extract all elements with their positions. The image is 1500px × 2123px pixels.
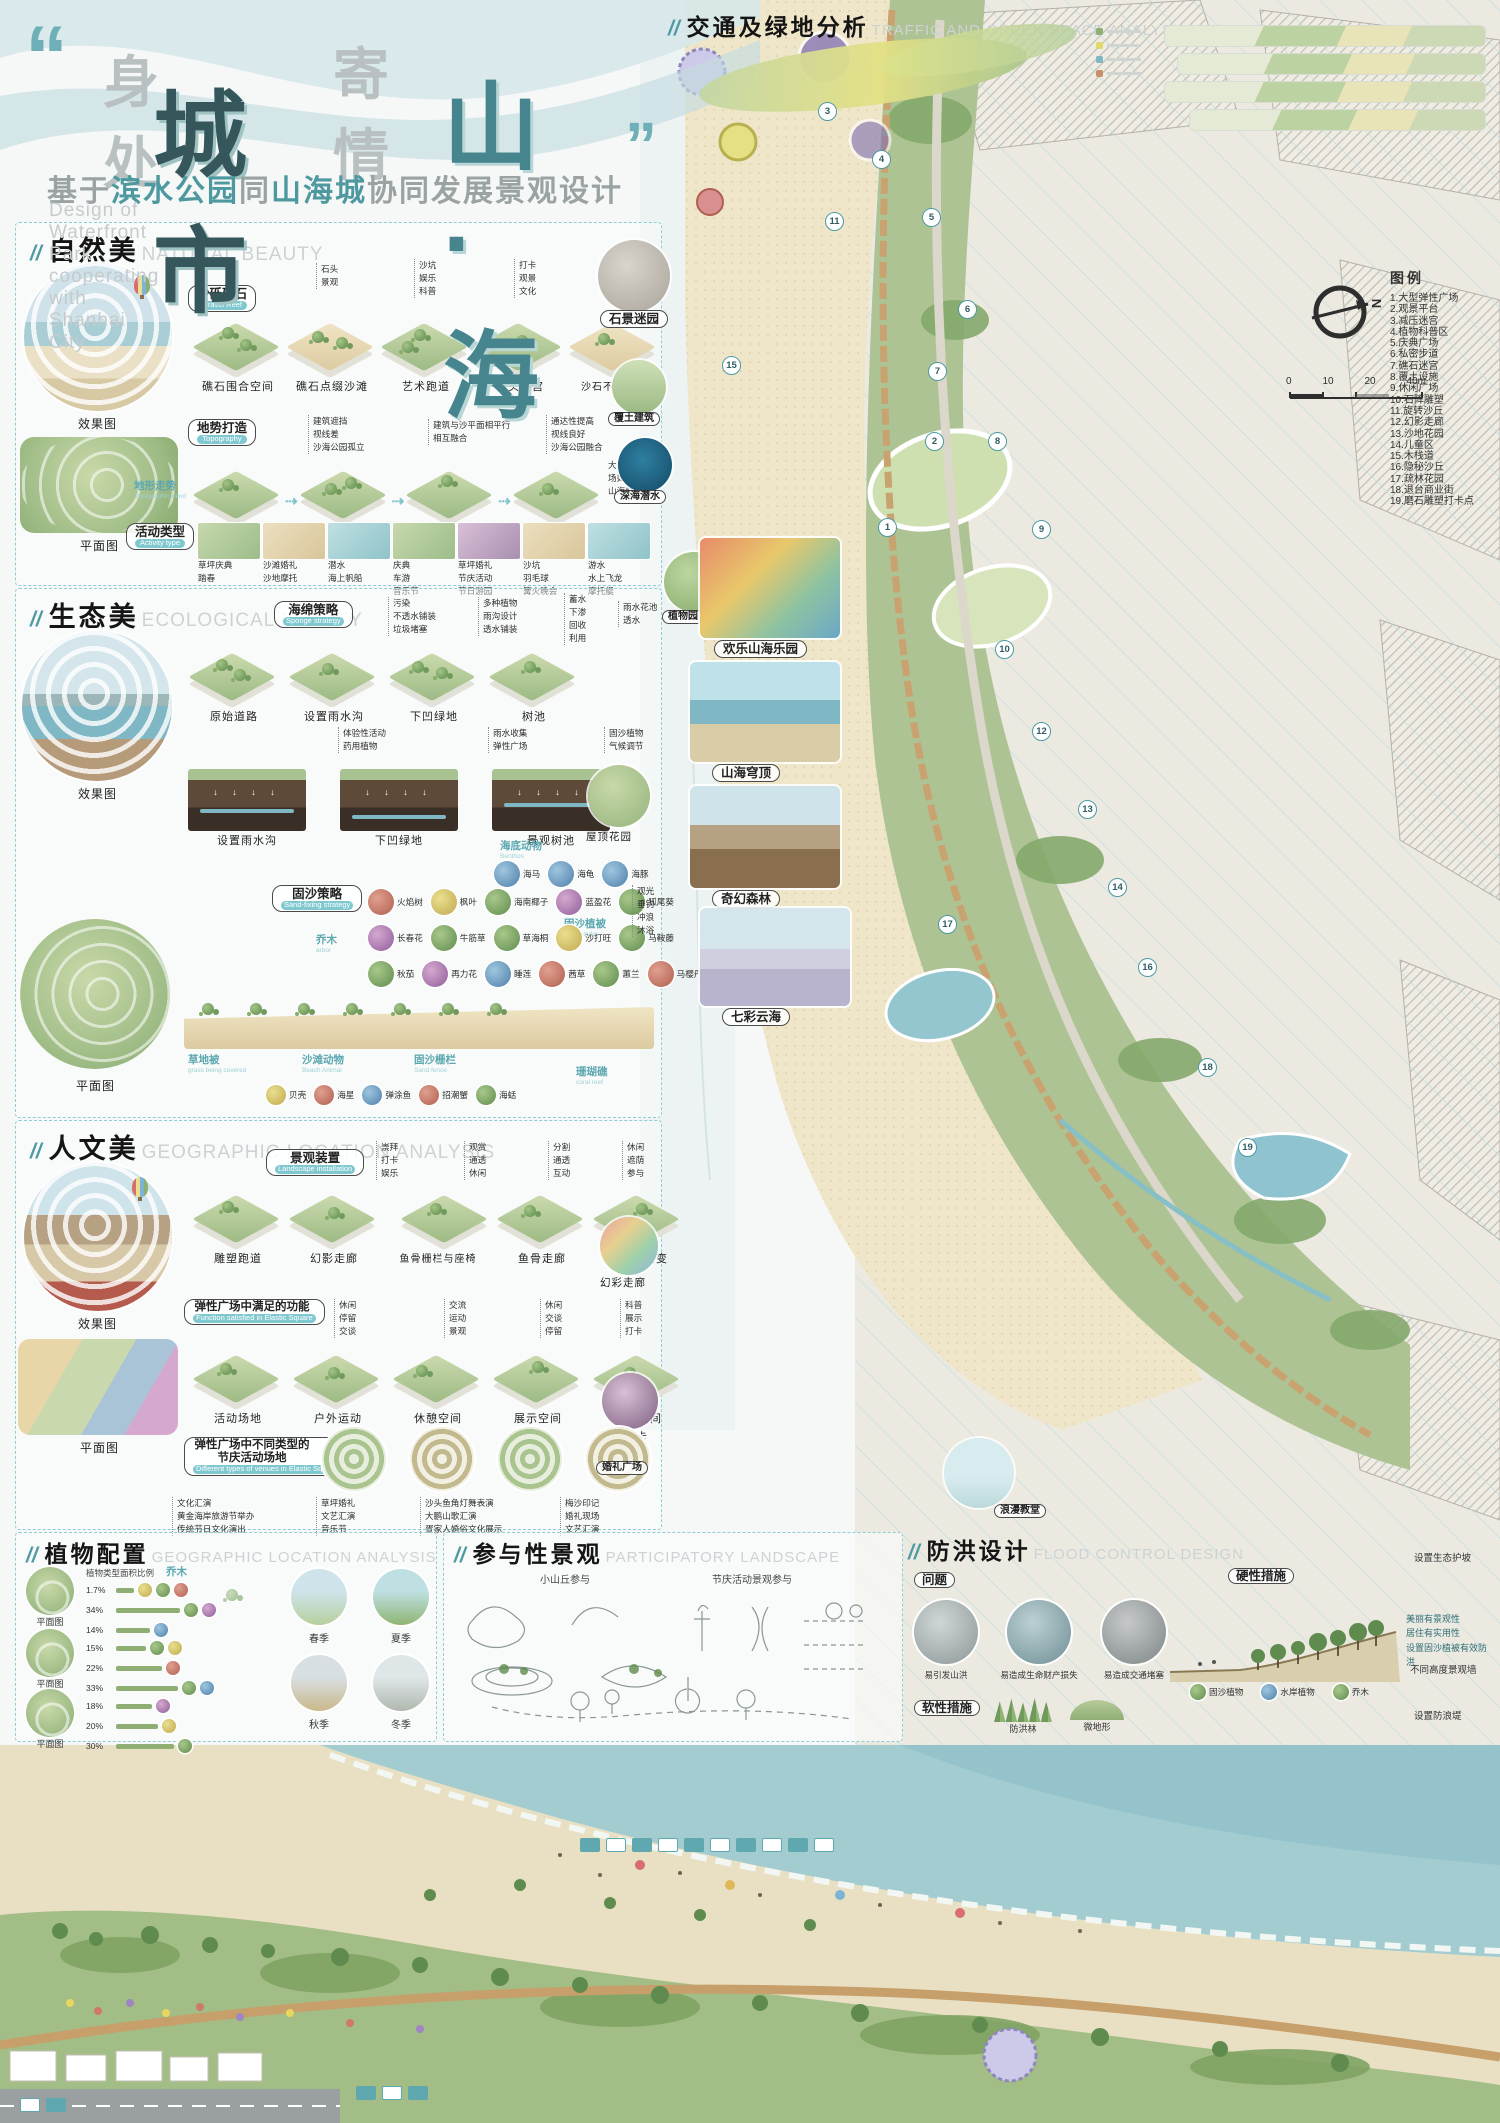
iso-tile — [192, 1343, 284, 1409]
mandala-pool — [984, 2029, 1036, 2081]
legend-items: 1.大型弹性广场 2.观景平台 3.减压迷宫 4.植物科普区 5.庆典广场 6.… — [1390, 293, 1498, 508]
participation-sketches — [452, 1581, 892, 1736]
slope-plant-row: 固沙植物 水岸植物 乔木 — [1190, 1684, 1369, 1700]
plant-circle — [556, 925, 582, 951]
colorful-sea-photo — [700, 908, 850, 1006]
sea-animal-circle — [494, 861, 520, 887]
iso-tile — [405, 459, 497, 525]
note-group: 蓄水 下渗 回收 利用 — [564, 593, 586, 645]
map-marker: 1 — [878, 518, 897, 537]
section-humanistic-beauty: // 人文美 GEOGRAPHIC LOCATION ANALYSIS 效果图 … — [15, 1120, 662, 1530]
chapel-callout: 浪漫教堂 — [994, 1504, 1046, 1518]
iso-tile — [388, 641, 480, 707]
palm-icon — [442, 1003, 454, 1015]
func-group: 交流 运动 景观 — [444, 1299, 466, 1338]
effect-caption: 效果图 — [78, 1315, 117, 1332]
map-marker: 3 — [818, 102, 837, 121]
chart-title: 植物类型面积比例 — [86, 1567, 154, 1579]
amenity-icon — [46, 2098, 66, 2112]
event-group: 文化汇演 黄金海岸旅游节举办 传统节日文化演出 — [172, 1497, 254, 1536]
hard-measure-notes: 美丽有景观性 居住有实用性 设置固沙植被有效防洪 — [1406, 1612, 1488, 1670]
animal-circle — [266, 1085, 286, 1105]
winter-photo — [373, 1655, 429, 1711]
plant-circle — [485, 961, 511, 987]
amenity-icon — [658, 1838, 678, 1852]
palm-icon — [346, 1003, 358, 1015]
amenity-icon — [606, 1838, 626, 1852]
right-note-1: 设置生态护坡 — [1414, 1550, 1471, 1564]
sand-fence-group-chip: 固沙栅栏Sand fence — [414, 1055, 456, 1074]
elastic-square-function-chip: 弹性广场中满足的功能Function satisfied in Elastic … — [184, 1299, 325, 1325]
compass-north-label: N — [1369, 299, 1384, 308]
plan-thumb-2: 平面图 — [26, 1629, 74, 1690]
colorful-sea-callout: 七彩云海 — [722, 1008, 790, 1026]
amenity-icon-bar-3 — [20, 2098, 66, 2112]
eco-effect-photo — [22, 631, 172, 781]
plant-circle — [368, 961, 394, 987]
canopy-photo — [690, 662, 840, 762]
human-plan-image — [18, 1339, 178, 1435]
amenity-icon — [580, 1838, 600, 1852]
flow-arrow-icon: ⇢ — [285, 492, 298, 510]
map-marker: 4 — [872, 150, 891, 169]
balloon-icon — [132, 1177, 148, 1197]
human-header: // 人文美 GEOGRAPHIC LOCATION ANALYSIS — [30, 1127, 495, 1166]
analysis-thumb-2 — [1178, 54, 1485, 74]
traffic-title: 交通及绿地分析 — [687, 8, 869, 42]
flood-problem-photo — [1007, 1600, 1071, 1664]
topo-trend-chip: 地形走势Topographic trend — [134, 481, 186, 500]
legend-swatch-teal — [1096, 56, 1103, 63]
earth-building-callout: 覆土建筑 — [608, 412, 660, 426]
plan-caption: 平面图 — [80, 537, 119, 554]
amenity-icon — [20, 2098, 40, 2112]
func-group: 科普 展示 打卡 — [620, 1299, 642, 1338]
note-group: 多种植物 雨沟设计 透水铺装 — [478, 597, 517, 636]
benthos-group-chip: 海底动物Benthos — [500, 841, 542, 860]
wedding-plaza-chip: 婚礼广场 — [596, 1461, 648, 1475]
forest-pavilion-photo — [690, 786, 840, 888]
canopy-callout: 山海穹顶 — [712, 764, 780, 782]
palm-row — [202, 1003, 502, 1015]
flood-problem-photo — [914, 1600, 978, 1664]
sponge-strategy-chip: 海绵策略Sponge strategy — [274, 601, 353, 628]
palm-icon — [490, 1003, 502, 1015]
pct-block-2: 15% 22% 33% — [86, 1641, 214, 1695]
circular-plaza — [498, 1427, 562, 1491]
map-marker: 14 — [1108, 878, 1127, 897]
map-marker: 11 — [825, 212, 844, 231]
amenity-icon — [408, 2086, 428, 2100]
note-group: 崇拜 打卡 娱乐 — [376, 1141, 398, 1180]
iso-tile — [288, 641, 380, 707]
tile-note: 雨水收集 弹性广场 — [488, 727, 527, 753]
legend-title: 图例 — [1390, 268, 1498, 288]
map-marker: 16 — [1138, 958, 1157, 977]
map-marker: 13 — [1078, 800, 1097, 819]
activity-type-chip: 活动类型Activity type — [126, 523, 194, 550]
problem-chip: 问题 — [914, 1572, 955, 1588]
palm-icon — [394, 1003, 406, 1015]
grass-group-chip: 草地被grass being covered — [188, 1055, 247, 1074]
note-group: 观赏 通透 休闲 — [464, 1141, 486, 1180]
section-slash-icon: // — [30, 242, 42, 266]
analysis-thumb-3 — [1165, 82, 1485, 102]
iso-tile — [488, 641, 580, 707]
color-corridor-caption: 幻彩走廊 — [600, 1275, 646, 1290]
sea-animal-circle — [602, 861, 628, 887]
iso-tile — [286, 311, 378, 377]
roof-garden-caption: 屋顶花园 — [586, 829, 632, 844]
deep-dive-callout: 深海潜水 — [614, 490, 666, 504]
landscape-installation-chip: 景观装置Landscape installation — [266, 1149, 364, 1176]
section-slash-icon: // — [668, 17, 680, 41]
plant-row-3: 秋茄 再力花 睡莲 茜草 蕙兰 马樱丹 — [368, 961, 707, 987]
section-slash-icon: // — [26, 1544, 38, 1568]
panorama-rendering — [0, 1745, 1500, 2123]
amenity-icon — [710, 1838, 730, 1852]
iso-tile — [188, 641, 280, 707]
close-quote: ” — [625, 108, 657, 182]
amenity-icon — [632, 1838, 652, 1852]
beach-animal-row: 贝壳 海星 弹涂鱼 招潮蟹 海蛞 — [266, 1085, 521, 1105]
title-part-4: 山·海 — [443, 50, 541, 438]
flood-header: // 防洪设计 FLOOD CONTROL DESIGN — [908, 1532, 1244, 1566]
activity-photo — [523, 523, 585, 559]
beach-activity-list: 观光 垂钓 冲浪 沐浴 — [632, 885, 654, 937]
plant-circle — [431, 925, 457, 951]
note-group: 通达性提高 视线良好 沙海公园融合 — [546, 415, 603, 454]
plant-circle — [368, 889, 394, 915]
part-header: // 参与性景观 PARTICIPATORY LANDSCAPE — [454, 1535, 840, 1569]
stone-garden-callout: 石景迷园 — [600, 310, 668, 328]
earth-building-photo — [612, 360, 666, 414]
human-title: 人文美 — [49, 1127, 139, 1166]
activity-photo — [393, 523, 455, 559]
section-ecological-beauty: // 生态美 ECOLOGICAL BEAUTY 海绵策略Sponge stra… — [15, 588, 662, 1118]
chapel-photo — [944, 1438, 1014, 1508]
beach-animal-group-chip: 沙滩动物Beach Animal — [302, 1055, 344, 1074]
part-title: 参与性景观 — [473, 1535, 603, 1569]
analysis-thumb-1 — [1165, 26, 1485, 46]
map-marker: 7 — [928, 362, 947, 381]
plan-caption: 平面图 — [80, 1439, 119, 1456]
eco-tiles-row: 原始道路 设置雨水沟 下凹绿地 树池 — [188, 641, 580, 724]
note-group: 沙坑 娱乐 科普 — [414, 259, 436, 298]
circular-plaza — [410, 1427, 474, 1491]
plant-circle — [648, 961, 674, 987]
forest-pavilion-callout: 奇幻森林 — [712, 890, 780, 908]
tile-note: 固沙植物 气候调节 — [604, 727, 643, 753]
autumn-photo — [291, 1655, 347, 1711]
palm-icon — [298, 1003, 310, 1015]
event-group: 沙头鱼角灯舞表演 大鹏山歌汇演 疍家人婚俗文化展示 — [420, 1497, 502, 1536]
animal-circle — [314, 1085, 334, 1105]
open-quote: “ — [25, 8, 68, 107]
event-group: 梅沙印记 婚礼现场 文艺汇演 — [560, 1497, 599, 1536]
legend-swatch-brown — [1096, 70, 1103, 77]
eco-plan-image — [20, 919, 170, 1069]
section-plant-configuration: // 植物配置 GEOGRAPHIC LOCATION ANALYSIS 平面图… — [15, 1532, 437, 1742]
activity-photo — [328, 523, 390, 559]
plan-caption: 平面图 — [76, 1077, 115, 1094]
analysis-thumb-4 — [1190, 110, 1485, 130]
note-group: 污染 不透水铺装 垃圾堵塞 — [388, 597, 436, 636]
topography-chip: 地势打造Topography — [188, 419, 256, 446]
amenity-icon — [788, 1838, 808, 1852]
plan-thumb-3: 平面图 — [26, 1689, 74, 1750]
map-marker: 19 — [1238, 1138, 1257, 1157]
tile-note: 体验性活动 药用植物 — [338, 727, 386, 753]
plants-header: // 植物配置 GEOGRAPHIC LOCATION ANALYSIS — [26, 1535, 437, 1569]
animal-circle — [419, 1085, 439, 1105]
plants-title: 植物配置 — [45, 1535, 149, 1569]
activity-photo — [458, 523, 520, 559]
amenity-icon — [762, 1838, 782, 1852]
flood-forest: 防洪林 — [994, 1696, 1052, 1735]
hard-measures-chip: 硬性措施 — [1228, 1568, 1294, 1584]
plan-thumb-1: 平面图 — [26, 1567, 74, 1628]
iso-tile — [192, 1183, 284, 1249]
iso-tile — [192, 459, 284, 525]
plant-circle — [368, 925, 394, 951]
note-group: 休闲 遮荫 参与 — [622, 1141, 644, 1180]
map-marker: 15 — [722, 356, 741, 375]
color-corridor-photo — [600, 1217, 658, 1275]
amenity-icon — [356, 2086, 376, 2100]
plant-circle — [485, 889, 511, 915]
benthos-row: 海马 海龟 海豚 — [494, 861, 654, 887]
botanic-garden-callout: 植物园 — [662, 610, 704, 624]
activity-photo-strip: 草坪庆典 踏春 沙滩婚礼 沙地摩托 潜水 海上帆船 庆典 车游 音乐节 草坪婚礼… — [198, 523, 650, 598]
season-photos: 春季 夏季 秋季 冬季 — [284, 1569, 436, 1731]
city-blocks-bottom — [10, 2051, 262, 2081]
map-legend: 图例 1.大型弹性广场 2.观景平台 3.减压迷宫 4.植物科普区 5.庆典广场… — [1390, 268, 1498, 508]
note-group: 分割 通透 互动 — [548, 1141, 570, 1180]
roof-garden-photo — [588, 765, 650, 827]
stone-garden-photo — [598, 240, 670, 312]
amenity-icon — [684, 1838, 704, 1852]
map-marker: 18 — [1198, 1058, 1217, 1077]
func-group: 休闲 交谈 停留 — [540, 1299, 562, 1338]
section-slash-icon: // — [30, 608, 42, 632]
note-group: 石头 景观 — [316, 263, 338, 289]
plant-circle — [539, 961, 565, 987]
flow-arrow-icon: ⇢ — [392, 492, 405, 510]
activity-photo — [588, 523, 650, 559]
flood-subtitle: FLOOD CONTROL DESIGN — [1034, 1546, 1244, 1563]
design-poster: N 0 10 20 40m 图例 1.大型弹性广场 2.观景平台 3.减压迷宫 … — [0, 0, 1500, 2123]
flood-problem-photo — [1102, 1600, 1166, 1664]
plant-circle — [494, 925, 520, 951]
circular-plaza — [586, 1427, 650, 1491]
problem-circles: 易引发山洪 易造成生命财产损失 易造成交通堵塞 — [908, 1600, 1174, 1681]
eco-title: 生态美 — [49, 595, 139, 634]
slope-diagram — [1170, 1598, 1400, 1682]
plant-circle — [431, 889, 457, 915]
right-note-3: 设置防浪堤 — [1414, 1708, 1462, 1722]
plant-circle — [422, 961, 448, 987]
iso-tile — [292, 1343, 384, 1409]
photo-spot-circle — [602, 1373, 658, 1429]
tiles-row-1: 礁石围合空间 礁石点缀沙滩 艺术跑道 石头迷宫 沙石不同铺装 — [192, 311, 660, 394]
analysis-mini-legend — [1096, 28, 1141, 77]
iso-tile — [392, 1183, 484, 1249]
participation-col-1: 小山丘参与 — [540, 1571, 590, 1586]
part-subtitle: PARTICIPATORY LANDSCAPE — [606, 1549, 840, 1566]
human-effect-photo — [24, 1163, 172, 1311]
rain-ditch-section — [188, 769, 306, 831]
plant-circle — [556, 889, 582, 915]
flow-arrow-icon: ⇢ — [498, 492, 511, 510]
legend-swatch-yellow — [1096, 42, 1103, 49]
circular-plaza — [322, 1427, 386, 1491]
playground-photo — [700, 538, 840, 638]
func-group: 休闲 停留 交谈 — [334, 1299, 356, 1338]
effect-caption: 效果图 — [78, 785, 117, 802]
note-group: 建筑遮挡 视线差 沙海公园孤立 — [308, 415, 365, 454]
right-note-2: 不同高度景观墙 — [1410, 1662, 1477, 1676]
poster-subtitle-en: Design of Waterfront Park cooperating wi… — [49, 200, 159, 354]
amenity-icon — [736, 1838, 756, 1852]
sunken-green-section — [340, 769, 458, 831]
arbor-chip: 乔木 — [166, 1567, 187, 1579]
section-slash-icon: // — [908, 1541, 920, 1565]
section-slash-icon: // — [454, 1544, 466, 1568]
section-flood-control: 浪漫教堂 // 防洪设计 FLOOD CONTROL DESIGN 问题 易引发… — [908, 1532, 1488, 1742]
iso-tile — [392, 1343, 484, 1409]
arbor-group-chip: 乔木arbor — [316, 935, 337, 954]
deep-dive-photo — [618, 438, 672, 492]
plaza-row — [322, 1427, 650, 1491]
note-group: 雨水花池 透水 — [618, 601, 657, 627]
amenity-icon — [814, 1838, 834, 1852]
spring-photo — [291, 1569, 347, 1625]
iso-tile — [492, 1343, 584, 1409]
map-marker: 8 — [988, 432, 1007, 451]
sea-animal-circle — [548, 861, 574, 887]
legend-swatch-green — [1096, 28, 1103, 35]
map-marker: 10 — [995, 640, 1014, 659]
map-marker: 17 — [938, 915, 957, 934]
amenity-icon-bar-2 — [356, 2086, 428, 2100]
map-marker: 5 — [922, 208, 941, 227]
effect-caption: 效果图 — [78, 415, 117, 432]
amenity-icon — [382, 2086, 402, 2100]
cross-section-row: 设置雨水沟 下凹绿地 景观树池 — [188, 769, 610, 848]
section-participatory: // 参与性景观 PARTICIPATORY LANDSCAPE 小山丘参与 节… — [443, 1532, 903, 1742]
iso-tile — [512, 459, 604, 525]
flood-title: 防洪设计 — [927, 1532, 1031, 1566]
palm-icon — [202, 1003, 214, 1015]
micro-terrain: 微地形 — [1070, 1700, 1124, 1733]
plants-subtitle: GEOGRAPHIC LOCATION ANALYSIS — [152, 1549, 437, 1566]
iso-tile — [288, 1183, 380, 1249]
map-marker: 9 — [1032, 520, 1051, 539]
coral-group-chip: 珊瑚礁coral reef — [576, 1067, 608, 1086]
palm-icon — [250, 1003, 262, 1015]
pct-block-3: 18% 20% 30% — [86, 1699, 192, 1753]
amenity-icon-bar — [580, 1838, 834, 1852]
playground-callout: 欢乐山海乐园 — [714, 640, 807, 658]
participation-col-2: 节庆活动景观参与 — [712, 1571, 792, 1586]
activity-photo — [198, 523, 260, 559]
map-marker: 12 — [1032, 722, 1051, 741]
plant-circle — [593, 961, 619, 987]
map-marker: 6 — [958, 300, 977, 319]
pct-block-1: 1.7% 34% 14% — [86, 1583, 216, 1637]
event-group: 草坪婚礼 文艺汇演 音乐节 — [316, 1497, 355, 1536]
animal-circle — [362, 1085, 382, 1105]
soft-measures-chip: 软性措施 — [914, 1700, 980, 1716]
animal-circle — [476, 1085, 496, 1105]
sand-fixing-chip: 固沙策略Sand-fixing strategy — [272, 885, 362, 912]
iso-tile — [496, 1183, 588, 1249]
summer-photo — [373, 1569, 429, 1625]
section-slash-icon: // — [30, 1140, 42, 1164]
map-marker: 2 — [925, 432, 944, 451]
iso-tile — [299, 459, 391, 525]
activity-photo — [263, 523, 325, 559]
